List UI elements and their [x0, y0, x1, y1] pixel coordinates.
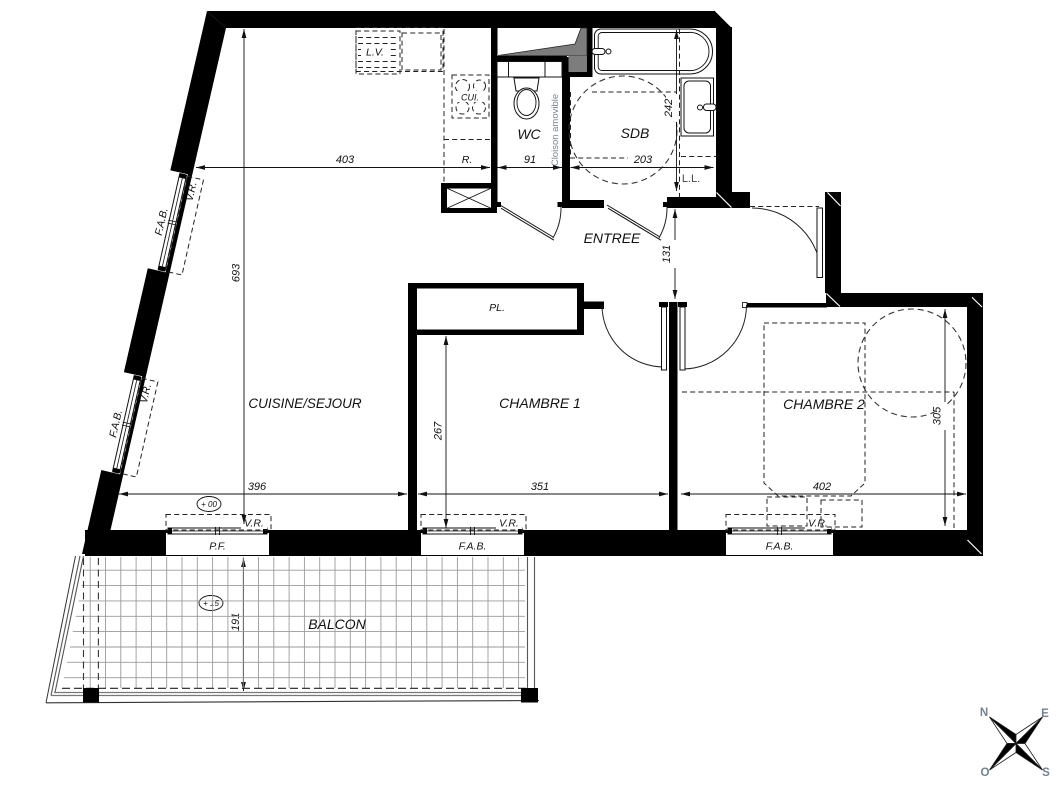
svg-text:V.R.: V.R. [244, 518, 264, 530]
svg-text:R.: R. [462, 154, 473, 166]
svg-text:CHAMBRE 1: CHAMBRE 1 [499, 395, 581, 411]
svg-text:N: N [980, 707, 988, 719]
svg-text:131: 131 [661, 245, 673, 263]
svg-text:PL.: PL. [489, 302, 505, 314]
svg-text:WC: WC [517, 126, 541, 142]
svg-text:SDB: SDB [621, 125, 650, 141]
svg-text:O: O [981, 767, 990, 779]
svg-text:693: 693 [231, 263, 243, 282]
svg-text:203: 203 [633, 154, 653, 166]
svg-text:91: 91 [524, 154, 536, 166]
svg-text:S: S [1042, 767, 1050, 779]
svg-text:351: 351 [531, 481, 549, 493]
svg-text:CUI.: CUI. [461, 93, 479, 103]
svg-text:Cloison amovible: Cloison amovible [550, 94, 561, 166]
svg-text:242: 242 [663, 99, 675, 118]
svg-text:191: 191 [230, 613, 242, 631]
svg-text:403: 403 [336, 154, 355, 166]
svg-text:BALCON: BALCON [308, 616, 366, 632]
svg-text:267: 267 [433, 421, 445, 441]
svg-text:E: E [1041, 708, 1049, 720]
svg-text:+ 15: + 15 [203, 599, 219, 608]
svg-text:ENTREE: ENTREE [584, 230, 641, 246]
svg-text:CHAMBRE 2: CHAMBRE 2 [783, 396, 865, 412]
svg-text:V.R.: V.R. [808, 518, 828, 530]
svg-text:L.L.: L.L. [682, 173, 700, 185]
svg-text:402: 402 [813, 481, 831, 493]
svg-text:F.A.B.: F.A.B. [766, 541, 794, 553]
svg-text:F.A.B.: F.A.B. [459, 541, 487, 553]
svg-text:P.F.: P.F. [209, 541, 226, 553]
svg-text:L.V.: L.V. [366, 47, 384, 59]
svg-text:+ 00: + 00 [201, 500, 217, 509]
svg-text:396: 396 [248, 481, 267, 493]
svg-text:305: 305 [932, 406, 944, 425]
svg-text:CUISINE/SEJOUR: CUISINE/SEJOUR [248, 396, 362, 411]
svg-text:V.R.: V.R. [499, 518, 519, 530]
